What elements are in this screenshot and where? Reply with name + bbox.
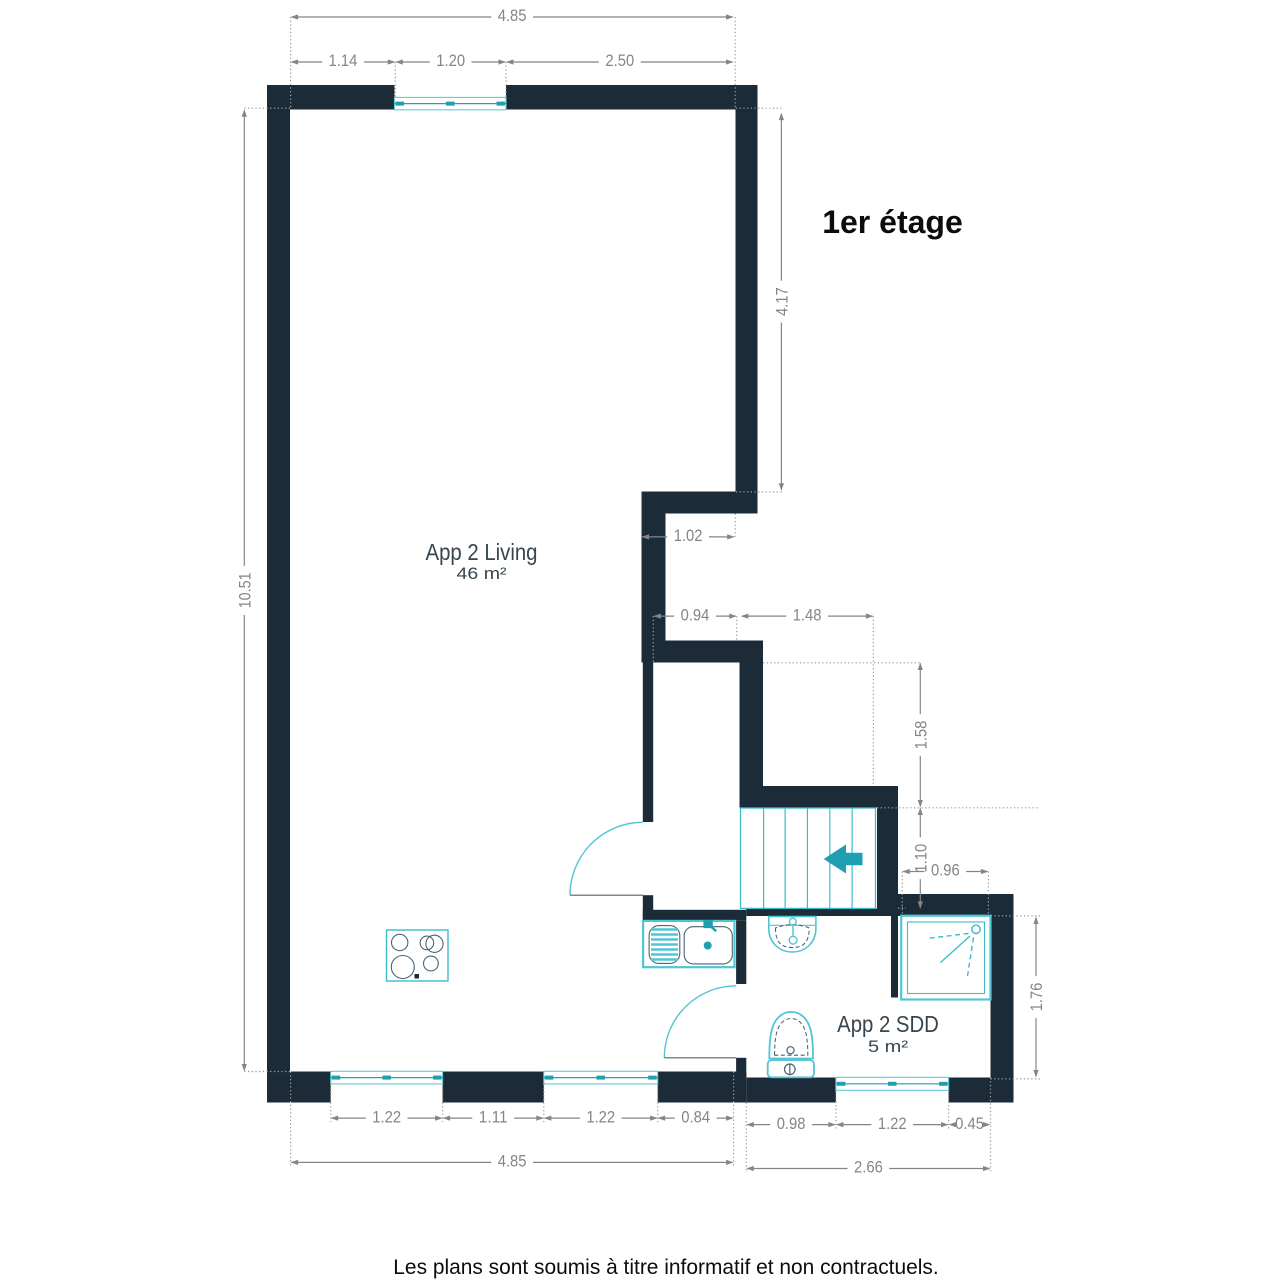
svg-text:0.94: 0.94: [681, 606, 710, 624]
svg-text:App 2 Living: App 2 Living: [426, 539, 538, 565]
svg-text:2.66: 2.66: [854, 1159, 883, 1177]
svg-text:0.98: 0.98: [777, 1115, 806, 1133]
svg-text:4.85: 4.85: [498, 7, 527, 25]
svg-text:1.22: 1.22: [372, 1108, 401, 1126]
svg-text:0.84: 0.84: [681, 1108, 710, 1126]
svg-text:46 m²: 46 m²: [457, 564, 508, 583]
svg-text:1.20: 1.20: [436, 52, 465, 70]
svg-text:4.17: 4.17: [773, 287, 791, 316]
svg-text:10.51: 10.51: [236, 572, 254, 608]
svg-text:1.58: 1.58: [912, 721, 930, 750]
svg-text:4.85: 4.85: [498, 1153, 527, 1171]
svg-text:App 2 SDD: App 2 SDD: [837, 1011, 939, 1037]
svg-text:1.48: 1.48: [793, 606, 822, 624]
svg-text:5 m²: 5 m²: [868, 1037, 909, 1056]
svg-text:Les plans sont soumis à titre: Les plans sont soumis à titre informatif…: [393, 1255, 938, 1279]
svg-text:1er étage: 1er étage: [822, 204, 963, 240]
svg-text:1.10: 1.10: [912, 844, 930, 873]
svg-text:1.14: 1.14: [329, 52, 358, 70]
svg-text:0.96: 0.96: [931, 862, 960, 880]
svg-text:1.76: 1.76: [1028, 983, 1046, 1012]
svg-text:1.02: 1.02: [674, 527, 703, 545]
svg-text:1.22: 1.22: [878, 1115, 907, 1133]
svg-text:2.50: 2.50: [605, 52, 634, 70]
svg-text:1.11: 1.11: [479, 1108, 508, 1126]
svg-text:0.45: 0.45: [955, 1115, 984, 1133]
svg-text:1.22: 1.22: [586, 1108, 615, 1126]
